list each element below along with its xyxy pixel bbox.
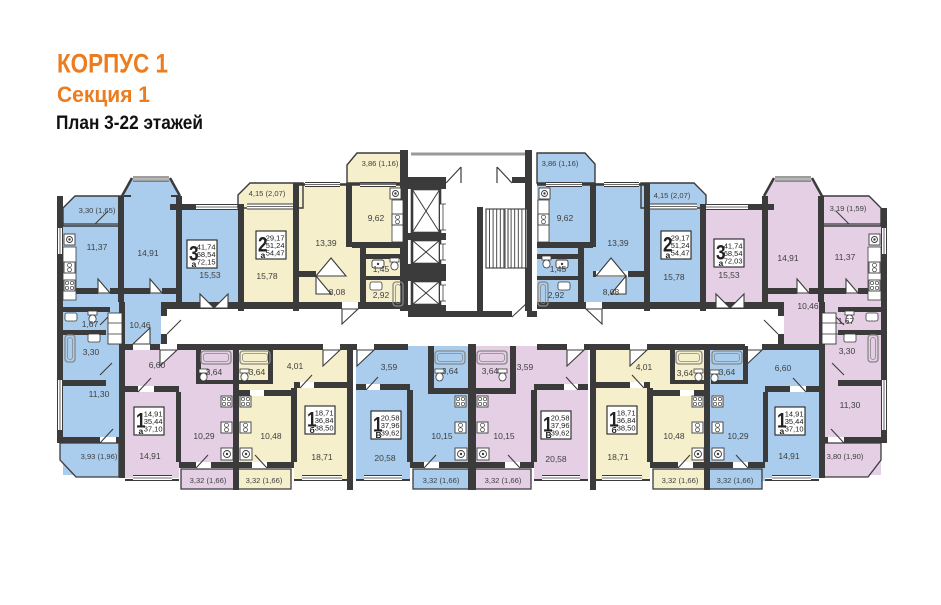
svg-text:38,50: 38,50 (315, 424, 334, 433)
svg-text:10,29: 10,29 (193, 431, 215, 441)
svg-text:Секция 1: Секция 1 (57, 82, 150, 107)
svg-text:3,30 (1,65): 3,30 (1,65) (79, 206, 116, 215)
svg-text:3,64: 3,64 (719, 367, 736, 377)
svg-text:2,92: 2,92 (548, 290, 565, 300)
svg-text:11,30: 11,30 (89, 389, 110, 399)
svg-text:10,29: 10,29 (727, 431, 749, 441)
svg-text:11,37: 11,37 (835, 252, 856, 262)
svg-text:3,64: 3,64 (482, 366, 499, 376)
svg-text:КОРПУС 1: КОРПУС 1 (57, 49, 168, 79)
svg-text:6,60: 6,60 (149, 360, 166, 370)
svg-text:2,92: 2,92 (373, 290, 390, 300)
svg-text:3,86 (1,16): 3,86 (1,16) (542, 159, 579, 168)
svg-text:10,46: 10,46 (797, 301, 819, 311)
svg-text:15,78: 15,78 (256, 271, 278, 281)
svg-text:37,10: 37,10 (144, 425, 163, 434)
svg-text:14,91: 14,91 (137, 248, 159, 258)
svg-text:4,01: 4,01 (287, 361, 304, 371)
svg-text:3,32 (1,66): 3,32 (1,66) (190, 476, 227, 485)
svg-text:72,15: 72,15 (197, 258, 216, 267)
svg-text:3,59: 3,59 (517, 362, 534, 372)
svg-text:1,67: 1,67 (838, 316, 855, 326)
svg-text:10,15: 10,15 (493, 431, 515, 441)
svg-text:39,62: 39,62 (381, 429, 400, 438)
svg-text:13,39: 13,39 (315, 238, 337, 248)
svg-text:4,15 (2,07): 4,15 (2,07) (249, 189, 286, 198)
svg-text:10,15: 10,15 (431, 431, 453, 441)
svg-text:4,15 (2,07): 4,15 (2,07) (654, 191, 691, 200)
svg-text:3,30: 3,30 (839, 346, 856, 356)
svg-text:3,32 (1,66): 3,32 (1,66) (423, 476, 460, 485)
svg-text:План 3-22 этажей: План 3-22 этажей (56, 112, 203, 134)
svg-text:6,60: 6,60 (775, 363, 792, 373)
svg-text:18,71: 18,71 (311, 452, 333, 462)
svg-text:3,32 (1,66): 3,32 (1,66) (717, 476, 754, 485)
svg-text:37,10: 37,10 (785, 425, 804, 434)
svg-text:3,64: 3,64 (249, 367, 266, 377)
svg-text:3,80 (1,90): 3,80 (1,90) (827, 452, 864, 461)
svg-text:1,67: 1,67 (82, 319, 99, 329)
svg-text:54,47: 54,47 (671, 249, 690, 258)
svg-text:14,91: 14,91 (777, 253, 799, 263)
svg-text:3,64: 3,64 (442, 366, 459, 376)
svg-text:15,78: 15,78 (663, 272, 685, 282)
svg-text:54,47: 54,47 (266, 249, 285, 258)
svg-text:8,08: 8,08 (603, 287, 620, 297)
svg-text:3,32 (1,66): 3,32 (1,66) (662, 476, 699, 485)
svg-text:1,45: 1,45 (373, 264, 390, 274)
svg-text:8,08: 8,08 (329, 287, 346, 297)
svg-text:3,32 (1,66): 3,32 (1,66) (485, 476, 522, 485)
svg-text:3,93 (1,96): 3,93 (1,96) (81, 452, 118, 461)
svg-text:18,71: 18,71 (607, 452, 629, 462)
svg-text:9,62: 9,62 (557, 213, 574, 223)
svg-text:20,58: 20,58 (374, 453, 396, 463)
svg-text:4,01: 4,01 (636, 362, 653, 372)
svg-text:3,19 (1,59): 3,19 (1,59) (830, 204, 867, 213)
svg-text:11,37: 11,37 (87, 242, 108, 252)
svg-text:3,30: 3,30 (83, 347, 100, 357)
svg-text:14,91: 14,91 (139, 451, 161, 461)
svg-text:72,03: 72,03 (724, 257, 743, 266)
svg-text:3,86 (1,16): 3,86 (1,16) (362, 159, 399, 168)
svg-text:3,32 (1,66): 3,32 (1,66) (246, 476, 283, 485)
svg-text:15,53: 15,53 (718, 270, 740, 280)
svg-text:10,48: 10,48 (663, 431, 685, 441)
svg-text:13,39: 13,39 (607, 238, 629, 248)
svg-text:3,59: 3,59 (381, 362, 398, 372)
svg-text:15,53: 15,53 (199, 270, 221, 280)
svg-text:3,64: 3,64 (677, 368, 694, 378)
svg-text:1,45: 1,45 (550, 264, 567, 274)
svg-text:3,64: 3,64 (206, 367, 223, 377)
svg-text:39,62: 39,62 (551, 429, 570, 438)
svg-text:11,30: 11,30 (840, 400, 861, 410)
svg-text:9,62: 9,62 (368, 213, 385, 223)
svg-text:10,46: 10,46 (129, 320, 151, 330)
svg-text:10,48: 10,48 (260, 431, 282, 441)
svg-text:20,58: 20,58 (545, 454, 567, 464)
svg-text:14,91: 14,91 (778, 451, 800, 461)
svg-text:38,50: 38,50 (617, 424, 636, 433)
